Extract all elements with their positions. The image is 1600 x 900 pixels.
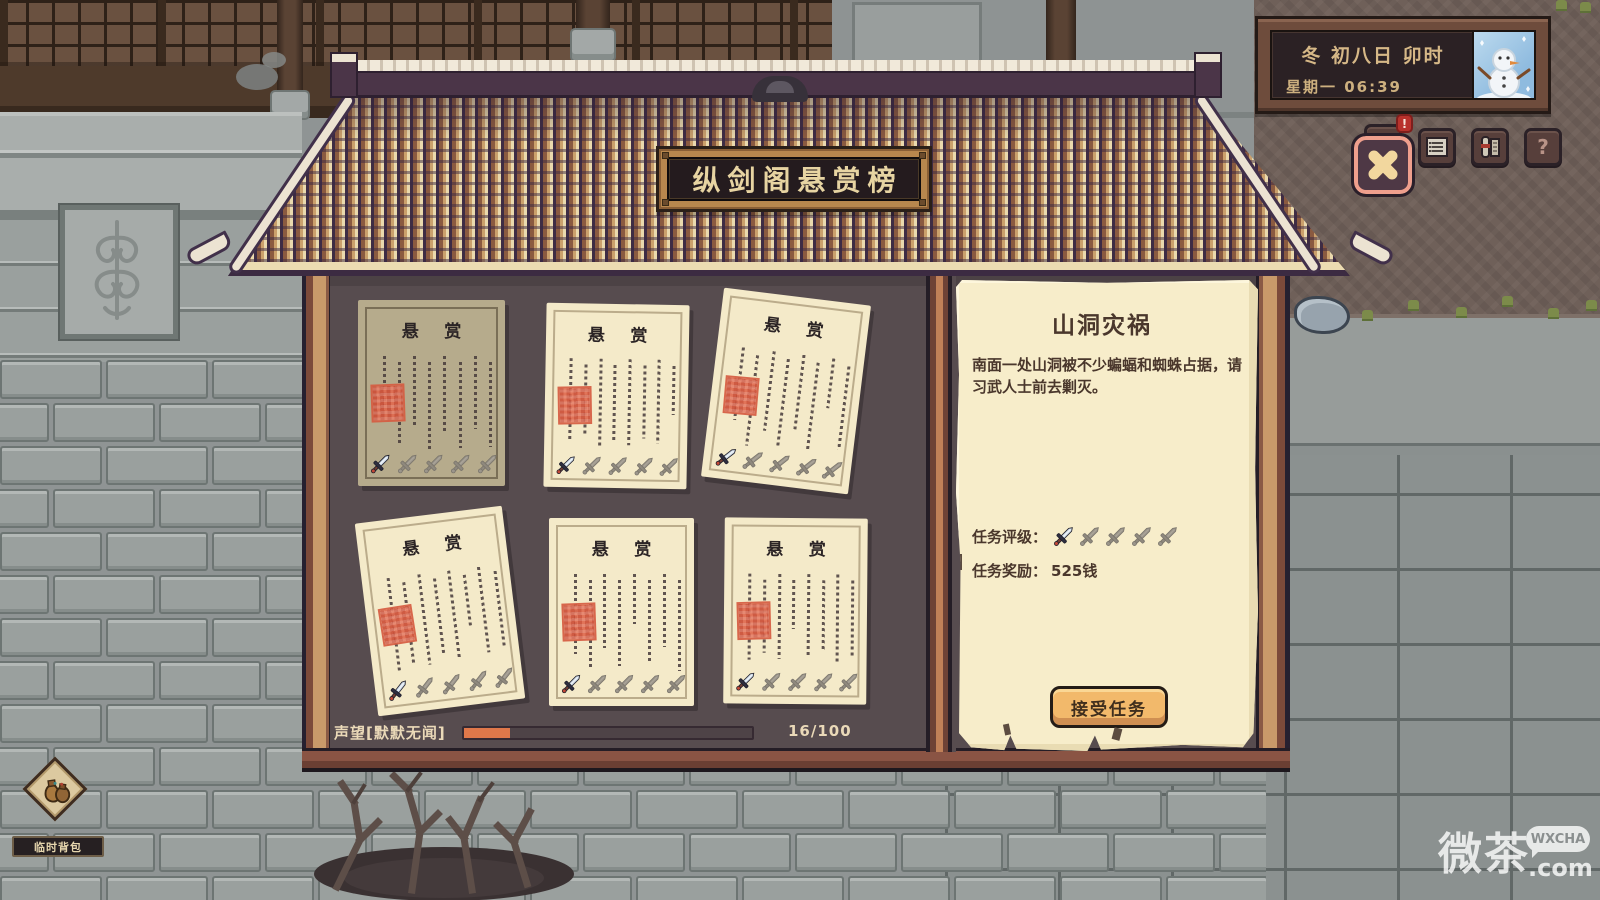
bounty-poster[interactable]: 悬赏 — [723, 517, 868, 704]
board-frame-right — [1256, 274, 1290, 772]
wooden-lattice-wall — [0, 0, 832, 118]
poster-title: 悬赏 — [358, 317, 505, 342]
brick-row — [0, 876, 1266, 900]
sign-rivet — [919, 199, 926, 206]
poster-rating-swords — [554, 452, 682, 480]
poster-title: 悬赏 — [549, 535, 694, 560]
quest-reward-row: 任务奖励： 525钱 — [972, 560, 1097, 581]
datetime-panel: 冬 初八日 卯时 星期一 06:39 — [1255, 16, 1551, 114]
game-screen: 悬赏悬赏悬赏悬赏悬赏悬赏 声望[默默无闻] 16/100 山洞灾祸 南面一处山洞… — [0, 0, 1600, 900]
reputation-fill — [464, 728, 510, 738]
quest-reward-value: 525钱 — [1051, 560, 1097, 581]
brick-row — [0, 833, 1266, 876]
grass-tuft — [1556, 0, 1567, 9]
poster-title: 悬赏 — [724, 534, 867, 560]
journal-button[interactable] — [1418, 128, 1456, 166]
grass-tuft — [1502, 296, 1513, 305]
brick-row — [0, 790, 1266, 833]
quest-scroll-button[interactable] — [1471, 128, 1509, 166]
help-button[interactable]: ? — [1524, 128, 1562, 166]
reputation-label: 声望[默默无闻] — [334, 722, 446, 743]
paper-tear — [1112, 728, 1123, 742]
stone-wall-right — [1254, 314, 1600, 460]
temp-backpack-button[interactable] — [22, 756, 88, 822]
quest-description: 南面一处山洞被不少蝙蝠和蜘蛛占据，请习武人士前去剿灭。 — [972, 354, 1246, 398]
poster-rating-swords — [733, 668, 861, 695]
poster-seal-stamp — [736, 601, 771, 640]
grass-tuft — [1580, 2, 1591, 11]
poster-seal-stamp — [561, 602, 596, 641]
smoke-puff — [262, 52, 286, 68]
watermark: 微茶 WXCHA .com — [1430, 818, 1600, 888]
quest-reward-label: 任务奖励： — [972, 560, 1047, 581]
scroll-icon — [1478, 135, 1502, 159]
quest-rating-swords — [1051, 524, 1180, 549]
backpack-icon — [39, 772, 73, 806]
close-icon — [1365, 147, 1401, 183]
paper-tear — [1003, 723, 1011, 735]
pillar-base — [1038, 84, 1084, 118]
quest-rating-row: 任务评级： — [972, 524, 1180, 549]
board-divider — [926, 274, 956, 752]
grass-tuft — [1362, 310, 1373, 319]
journal-icon — [1425, 136, 1449, 158]
poster-seal-stamp — [371, 383, 406, 422]
watermark-suffix: .com — [1528, 854, 1593, 882]
bounty-poster[interactable]: 悬赏 — [543, 303, 689, 489]
board-frame-bottom — [302, 748, 1290, 772]
pillar-base — [570, 28, 616, 62]
watermark-bubble: WXCHA — [1526, 826, 1590, 852]
sign-plate: 纵剑阁悬赏榜 — [667, 157, 921, 201]
bounty-poster[interactable]: 悬赏 — [358, 300, 505, 486]
datetime-display: 冬 初八日 卯时 星期一 06:39 — [1270, 30, 1476, 100]
sign-rivet — [919, 152, 926, 159]
board-title: 纵剑阁悬赏榜 — [685, 159, 902, 199]
reputation-progressbar — [462, 726, 754, 740]
bounty-poster[interactable]: 悬赏 — [355, 506, 526, 717]
dead-tree — [312, 762, 578, 900]
poster-title: 悬赏 — [546, 319, 689, 346]
board-title-sign: 纵剑阁悬赏榜 — [656, 146, 932, 212]
sign-rivet — [662, 152, 669, 159]
stone-ledge-groove — [0, 150, 302, 158]
stone-relief-panel — [60, 205, 178, 339]
board-frame-left — [302, 274, 330, 772]
poster-seal-stamp — [723, 375, 760, 416]
quest-title: 山洞灾祸 — [956, 306, 1248, 340]
sign-rivet — [662, 199, 669, 206]
poster-rating-swords — [559, 671, 688, 697]
help-icon: ? — [1537, 135, 1549, 159]
quest-detail-panel: 山洞灾祸 南面一处山洞被不少蝙蝠和蜘蛛占据，请习武人士前去剿灭。 任务评级： 任… — [956, 280, 1258, 752]
quest-rating-label: 任务评级： — [972, 526, 1047, 547]
notification-badge: ! — [1396, 114, 1413, 133]
grass-tuft — [1548, 308, 1559, 317]
grass-tuft — [1456, 307, 1467, 316]
concrete-panel — [852, 2, 982, 112]
stone-ledge — [0, 112, 302, 220]
bounty-poster[interactable]: 悬赏 — [701, 288, 871, 495]
accept-quest-button[interactable]: 接受任务 — [1050, 686, 1168, 728]
poster-seal-stamp — [557, 386, 592, 425]
close-button[interactable] — [1354, 136, 1412, 194]
wood-pillar — [1046, 0, 1076, 88]
reputation-value: 16/100 — [788, 722, 852, 740]
wood-pillar — [277, 0, 303, 94]
weather-snowman-icon — [1472, 30, 1536, 100]
poster-rating-swords — [368, 451, 499, 477]
bounty-poster[interactable]: 悬赏 — [549, 518, 694, 706]
game-date: 冬 初八日 卯时 — [1272, 41, 1474, 68]
grass-tuft — [1408, 300, 1419, 309]
backpack-label: 临时背包 — [12, 836, 104, 857]
grass-tuft — [1586, 300, 1597, 309]
watermark-brand: 微茶 — [1438, 818, 1530, 882]
poster-seal-stamp — [378, 604, 418, 647]
snow-mound — [1294, 296, 1350, 334]
game-weekday-time: 星期一 06:39 — [1286, 76, 1402, 97]
